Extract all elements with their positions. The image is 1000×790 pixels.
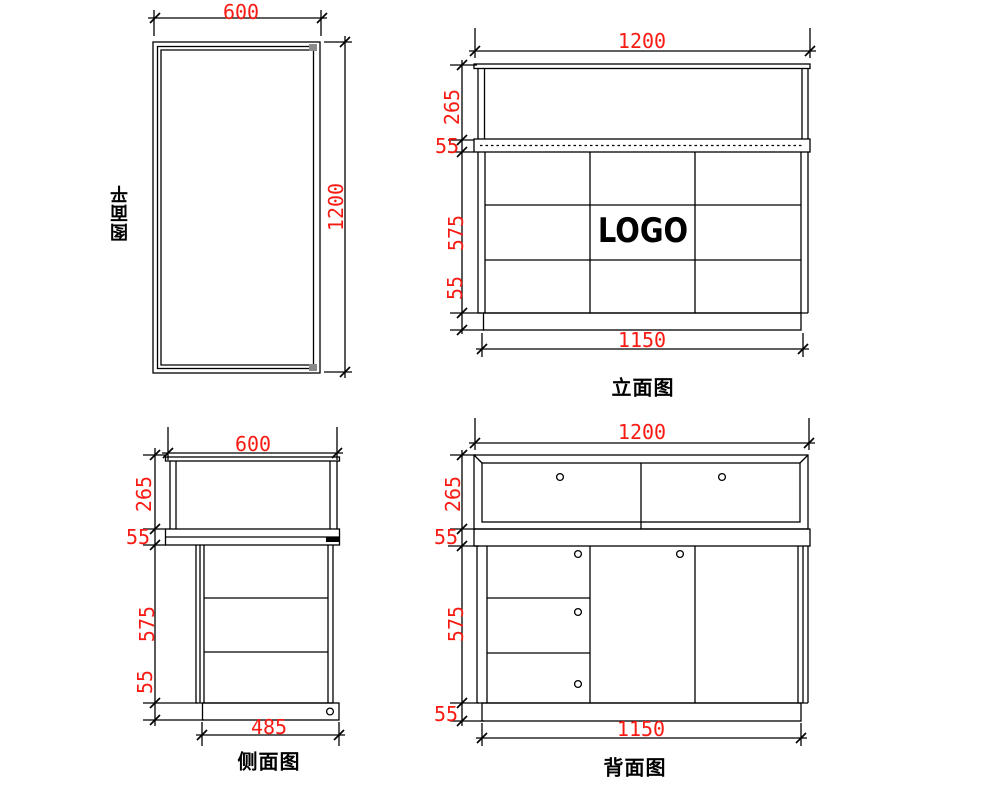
dim-label-plan-width: 600 xyxy=(223,0,259,24)
plan-view-linework xyxy=(148,10,352,378)
dim-label-front-glass: 265 xyxy=(440,89,464,125)
dim-label-front-counter: 55 xyxy=(435,134,459,158)
back-view-linework xyxy=(448,418,815,746)
dim-label-side-counter: 55 xyxy=(126,525,150,549)
dim-label-back-body: 575 xyxy=(444,606,468,642)
front-view-title: 立面图 xyxy=(612,372,675,401)
back-view-title: 背面图 xyxy=(604,752,667,781)
dim-label-front-body: 575 xyxy=(444,215,468,251)
dim-label-side-top: 600 xyxy=(235,432,271,456)
dim-label-back-top: 1200 xyxy=(618,420,666,444)
dim-label-side-glass: 265 xyxy=(132,476,156,512)
dim-label-front-plinth: 55 xyxy=(443,276,467,300)
dim-label-front-bottom: 1150 xyxy=(618,328,666,352)
plan-view-title: 平面图 xyxy=(110,184,128,241)
dim-label-side-bottom: 485 xyxy=(251,715,287,739)
dim-label-back-glass: 265 xyxy=(441,476,465,512)
dim-label-side-body: 575 xyxy=(135,606,159,642)
dim-label-front-top: 1200 xyxy=(618,29,666,53)
dim-label-side-plinth: 55 xyxy=(133,670,157,694)
dim-label-back-bottom: 1150 xyxy=(617,717,665,741)
dim-label-plan-height: 1200 xyxy=(324,183,348,231)
logo-panel-text: LOGO xyxy=(598,211,688,251)
side-view-title: 侧面图 xyxy=(238,746,301,775)
dim-label-back-counter: 55 xyxy=(434,525,458,549)
front-view-linework xyxy=(448,28,816,357)
side-view-linework xyxy=(143,427,345,746)
drawing-canvas: 600 1200 平面图 1200 265 55 575 55 1150 LOG… xyxy=(0,0,1000,790)
dim-label-back-plinth: 55 xyxy=(434,702,458,726)
